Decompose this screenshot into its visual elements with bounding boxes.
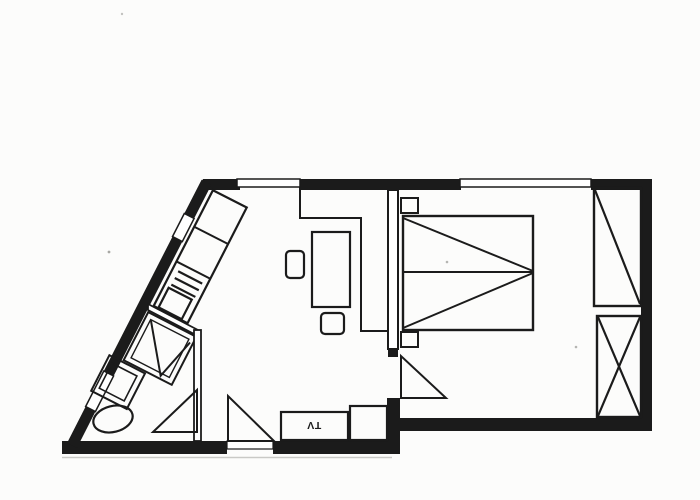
tv-label: TV bbox=[307, 419, 321, 431]
top-wall-mid bbox=[299, 179, 461, 190]
entry-door-leaf bbox=[228, 396, 274, 441]
page-background: TV bbox=[0, 0, 700, 500]
nightstand-bottom bbox=[401, 332, 418, 347]
wardrobe-upper-diagonal bbox=[595, 190, 640, 304]
tv-side-cabinet bbox=[350, 406, 387, 440]
scan-speckle bbox=[121, 13, 123, 15]
hall-bottom-wall-left bbox=[62, 441, 227, 454]
kitchen-group bbox=[91, 182, 259, 422]
chair-bottom bbox=[321, 313, 344, 334]
diagonal-wall-mid bbox=[109, 239, 178, 373]
bedroom-door-jamb bbox=[388, 349, 398, 357]
living-bedroom-wall bbox=[388, 190, 398, 349]
counter-divider-1 bbox=[194, 227, 228, 244]
table bbox=[312, 232, 350, 307]
scan-speckle bbox=[575, 346, 578, 349]
top-window-left bbox=[237, 179, 300, 187]
chair-left bbox=[286, 251, 304, 278]
divider-wall-bottom-bar bbox=[387, 398, 400, 454]
nightstand-top bbox=[401, 198, 418, 213]
scan-speckle bbox=[108, 251, 111, 254]
top-window-right bbox=[460, 179, 591, 187]
entry-door-threshold bbox=[227, 441, 273, 449]
bed-diagonal-top bbox=[403, 218, 533, 271]
bathroom-door-leaf bbox=[153, 390, 197, 432]
bed-diagonal-bottom bbox=[403, 273, 533, 328]
bedroom-door-leaf bbox=[401, 356, 446, 398]
entry-wardrobe-outline bbox=[300, 190, 388, 331]
right-wall bbox=[641, 179, 652, 431]
counter-divider-2 bbox=[176, 261, 210, 278]
diagonal-wall-upper bbox=[189, 182, 206, 216]
diagonal-wall-lower bbox=[72, 409, 91, 446]
diagonal-window-small bbox=[173, 214, 195, 242]
bedroom-bottom-wall bbox=[395, 418, 652, 431]
scan-speckle bbox=[446, 261, 449, 264]
hall-bottom-wall-right bbox=[273, 441, 388, 454]
floor-plan: TV bbox=[0, 0, 700, 500]
